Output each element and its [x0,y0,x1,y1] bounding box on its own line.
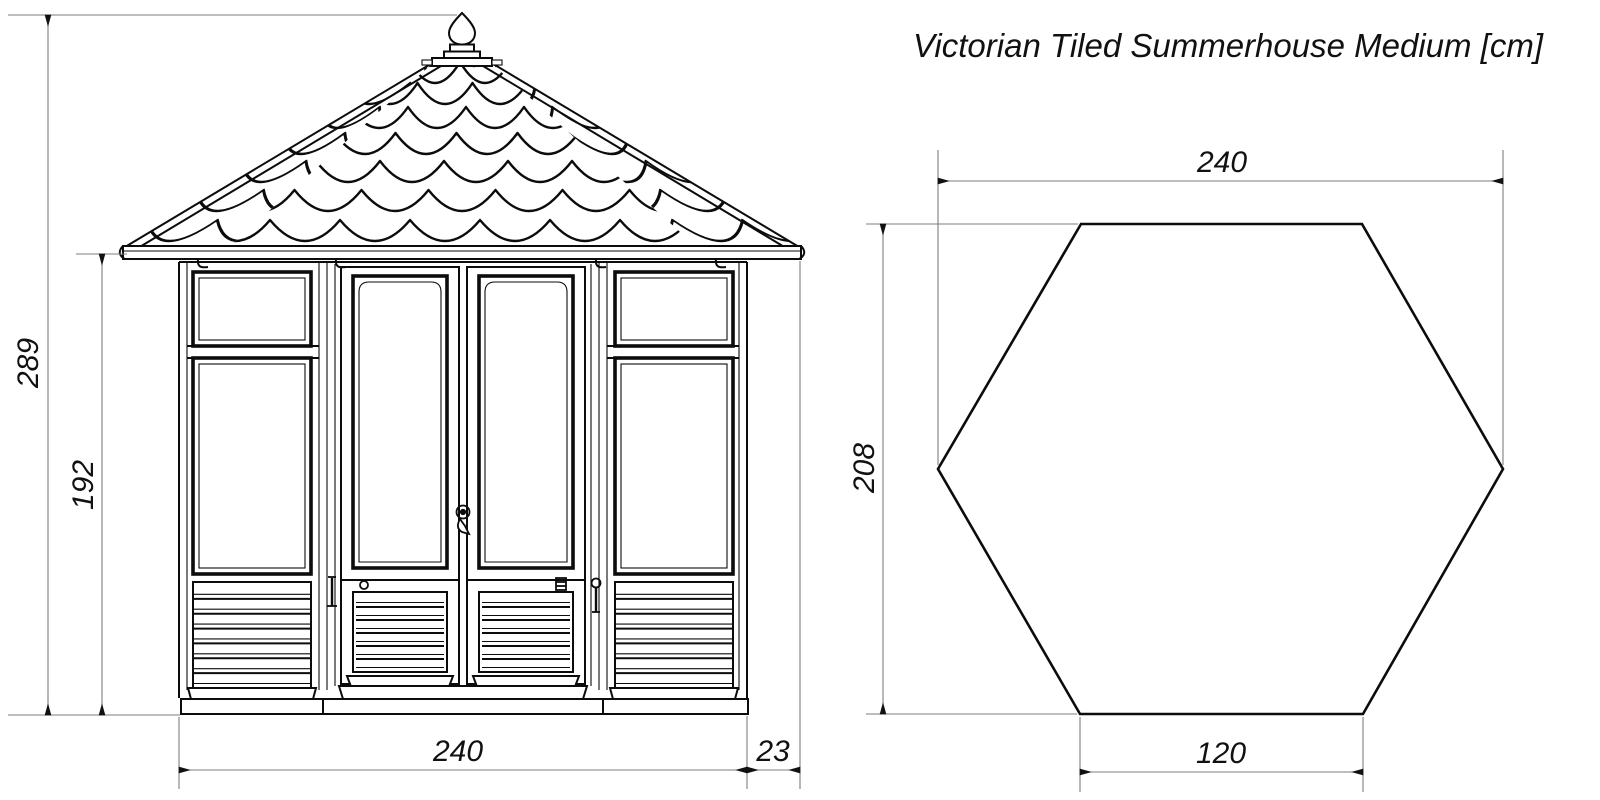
dim-label-depth: 208 [848,443,881,494]
drawing-canvas: 289 192 240 23 240 208 120 Victorian Til… [0,0,1600,800]
dim-label-wall-height: 192 [67,460,100,510]
door-threshold [339,686,587,699]
technical-drawing-sheet: 289 192 240 23 240 208 120 Victorian Til… [0,0,1600,800]
dim-label-front-side: 120 [1196,737,1246,770]
dim-label-overall-width: 240 [1196,146,1247,179]
dim-label-base-width: 240 [432,735,483,768]
drawing-title: Victorian Tiled Summerhouse Medium [cm] [913,27,1544,64]
left-window-sill [188,688,316,699]
right-window-sill [610,688,738,699]
dim-label-overall-height: 289 [12,338,45,389]
dim-label-roof-overhang: 23 [755,735,790,768]
